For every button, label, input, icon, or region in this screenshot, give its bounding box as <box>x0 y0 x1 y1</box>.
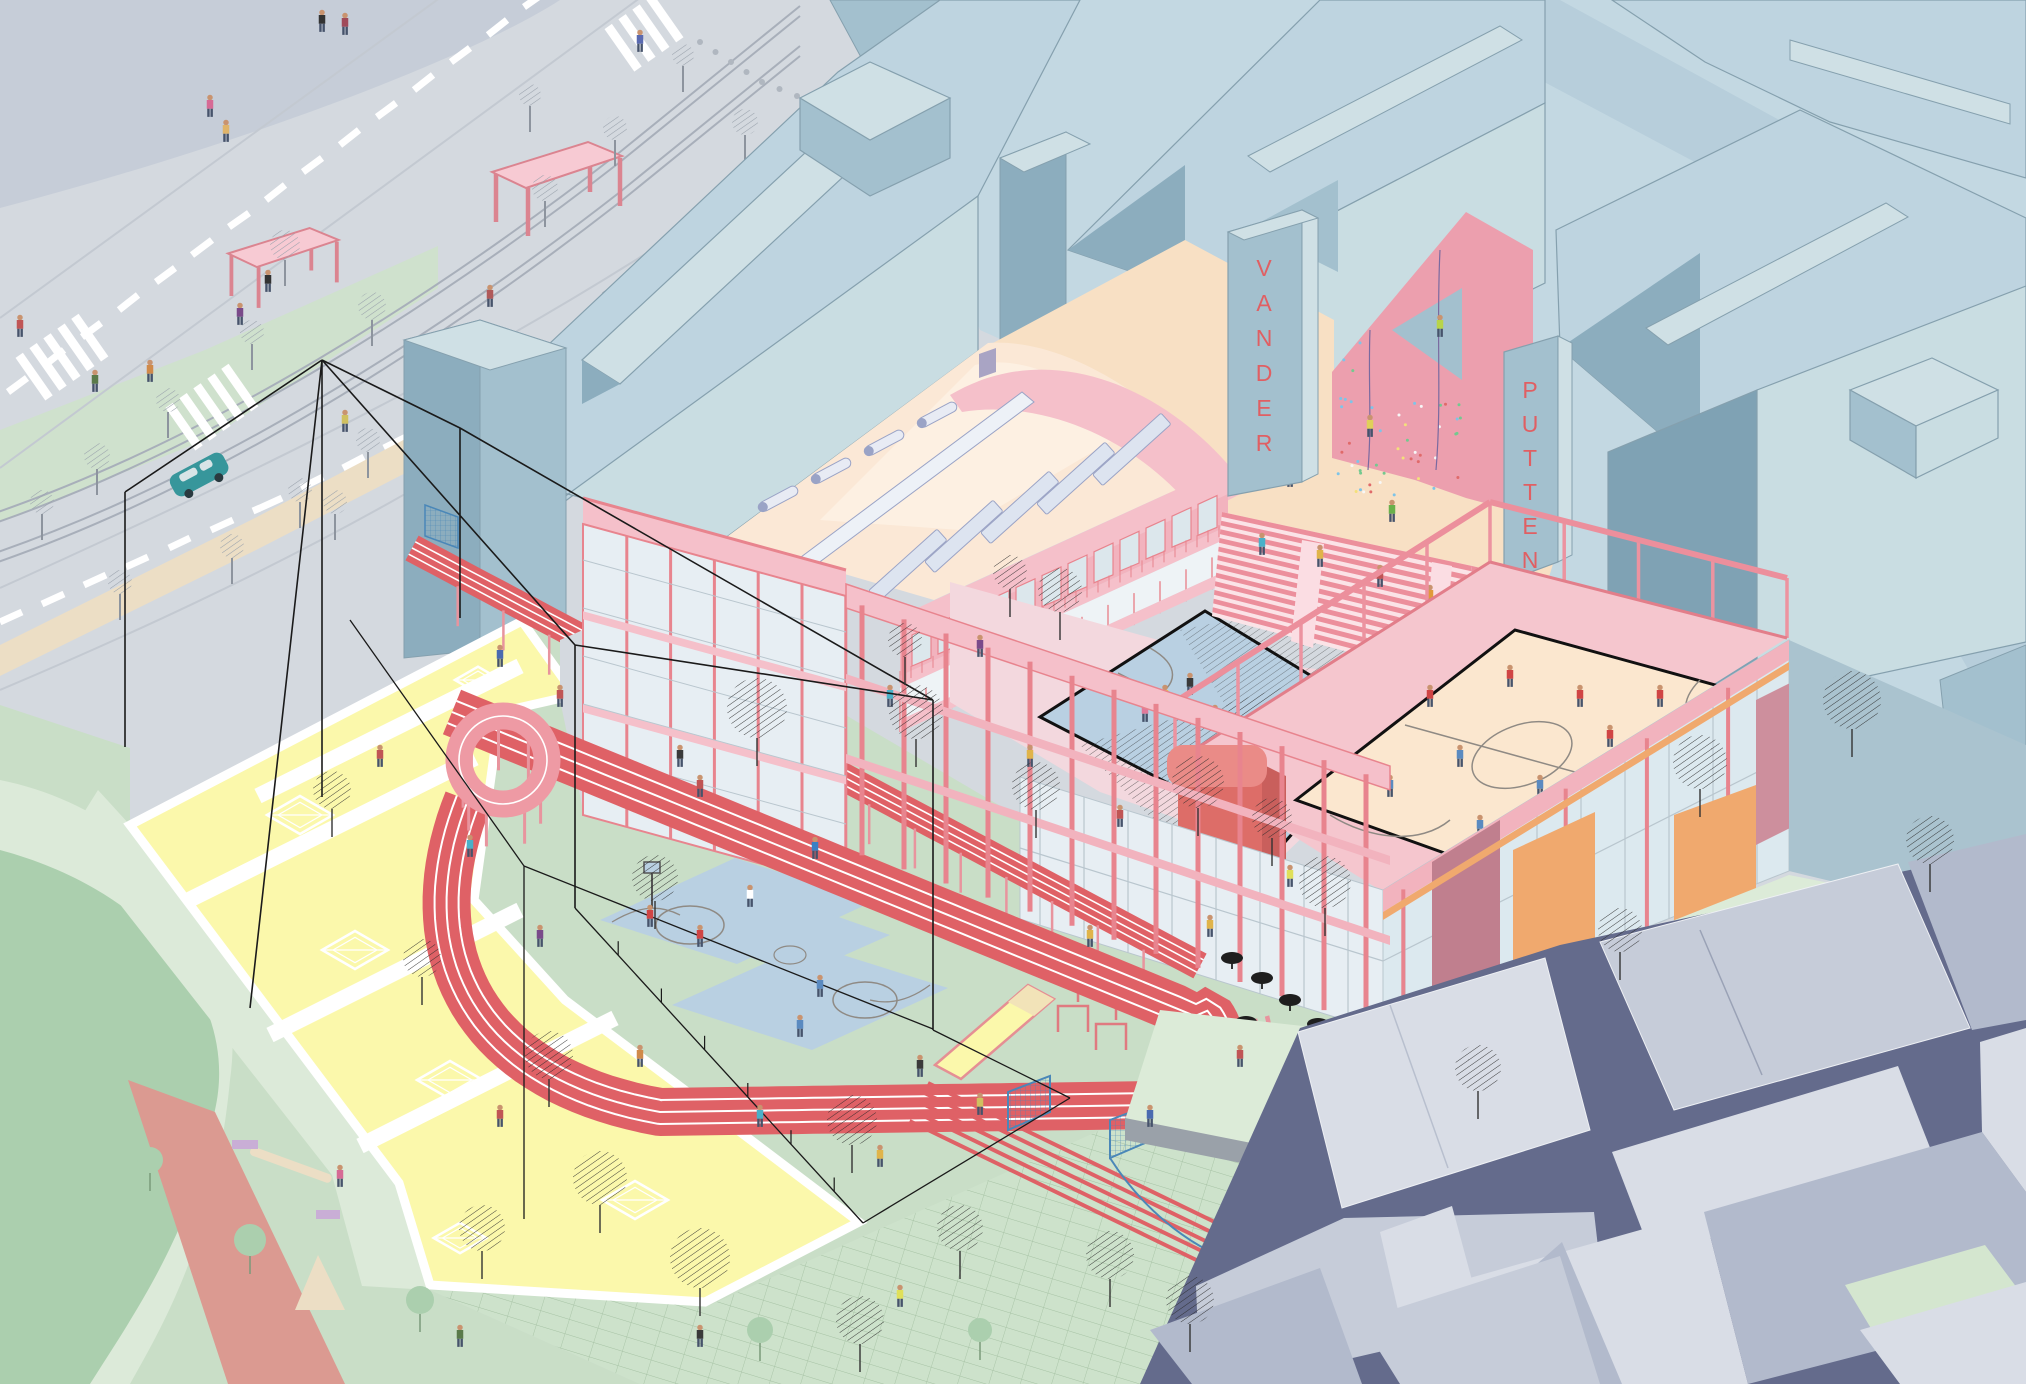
svg-text:N: N <box>1256 325 1273 351</box>
svg-text:R: R <box>1256 430 1273 456</box>
svg-text:E: E <box>1256 395 1271 421</box>
svg-text:D: D <box>1256 360 1273 386</box>
svg-text:T: T <box>1523 479 1537 505</box>
svg-text:N: N <box>1522 547 1539 573</box>
svg-text:V: V <box>1256 255 1272 281</box>
svg-text:E: E <box>1522 513 1537 539</box>
svg-text:U: U <box>1522 411 1539 437</box>
svg-text:T: T <box>1523 445 1537 471</box>
svg-text:P: P <box>1522 377 1537 403</box>
svg-text:A: A <box>1256 290 1272 316</box>
